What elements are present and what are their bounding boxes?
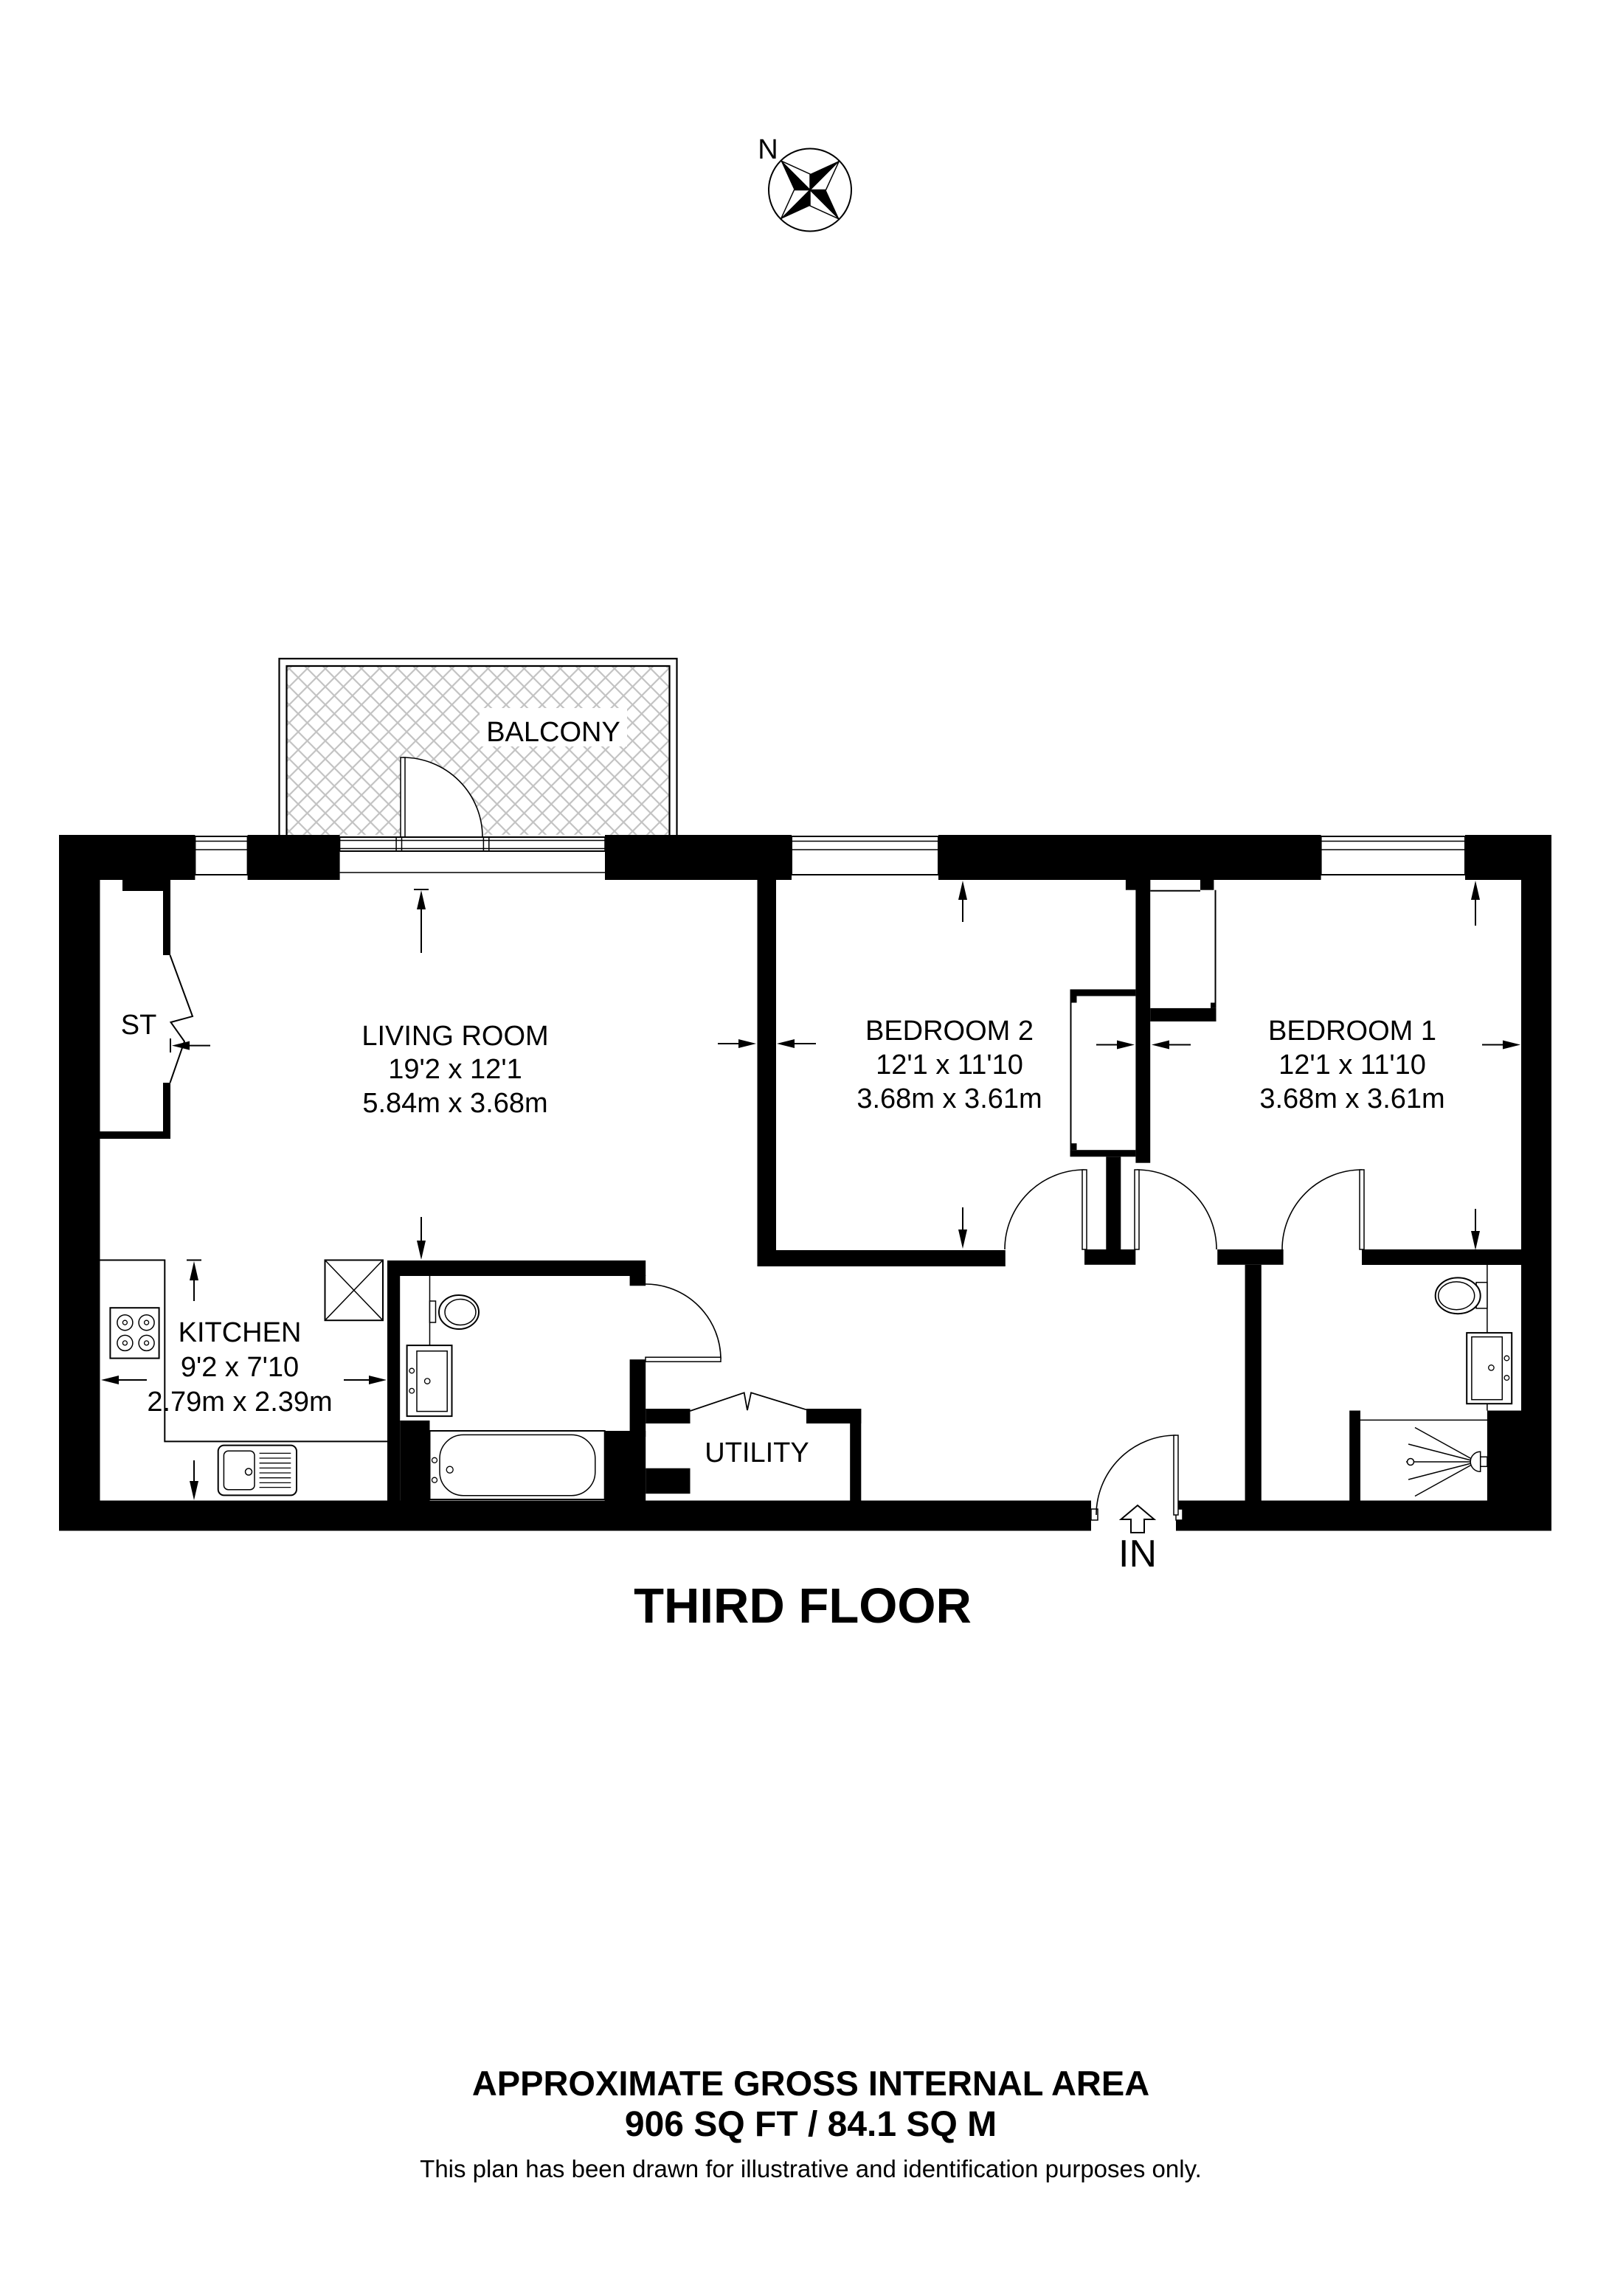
svg-text:3.68m x 3.61m: 3.68m x 3.61m <box>1259 1083 1444 1114</box>
svg-text:This plan has been drawn for i: This plan has been drawn for illustrativ… <box>420 2155 1202 2182</box>
svg-text:BALCONY: BALCONY <box>486 717 620 748</box>
svg-text:ST: ST <box>121 1010 157 1041</box>
svg-text:APPROXIMATE GROSS INTERNAL ARE: APPROXIMATE GROSS INTERNAL AREA <box>472 2064 1149 2103</box>
svg-text:KITCHEN: KITCHEN <box>179 1317 302 1348</box>
svg-text:BEDROOM 2: BEDROOM 2 <box>865 1016 1034 1047</box>
svg-text:IN: IN <box>1118 1533 1157 1575</box>
svg-text:12'1 x 11'10: 12'1 x 11'10 <box>876 1050 1023 1081</box>
svg-text:2.79m x 2.39m: 2.79m x 2.39m <box>147 1387 332 1418</box>
svg-text:906 SQ FT / 84.1 SQ M: 906 SQ FT / 84.1 SQ M <box>625 2105 997 2144</box>
svg-text:LIVING ROOM: LIVING ROOM <box>361 1021 548 1052</box>
svg-text:9'2 x 7'10: 9'2 x 7'10 <box>181 1352 299 1383</box>
svg-text:UTILITY: UTILITY <box>705 1437 809 1468</box>
svg-text:N: N <box>758 134 778 165</box>
svg-text:12'1 x 11'10: 12'1 x 11'10 <box>1278 1050 1426 1081</box>
svg-text:THIRD FLOOR: THIRD FLOOR <box>634 1578 972 1634</box>
svg-text:5.84m x 3.68m: 5.84m x 3.68m <box>362 1088 547 1119</box>
svg-text:BEDROOM 1: BEDROOM 1 <box>1268 1016 1436 1047</box>
svg-text:19'2 x 12'1: 19'2 x 12'1 <box>388 1054 522 1085</box>
svg-text:3.68m x 3.61m: 3.68m x 3.61m <box>857 1083 1042 1114</box>
